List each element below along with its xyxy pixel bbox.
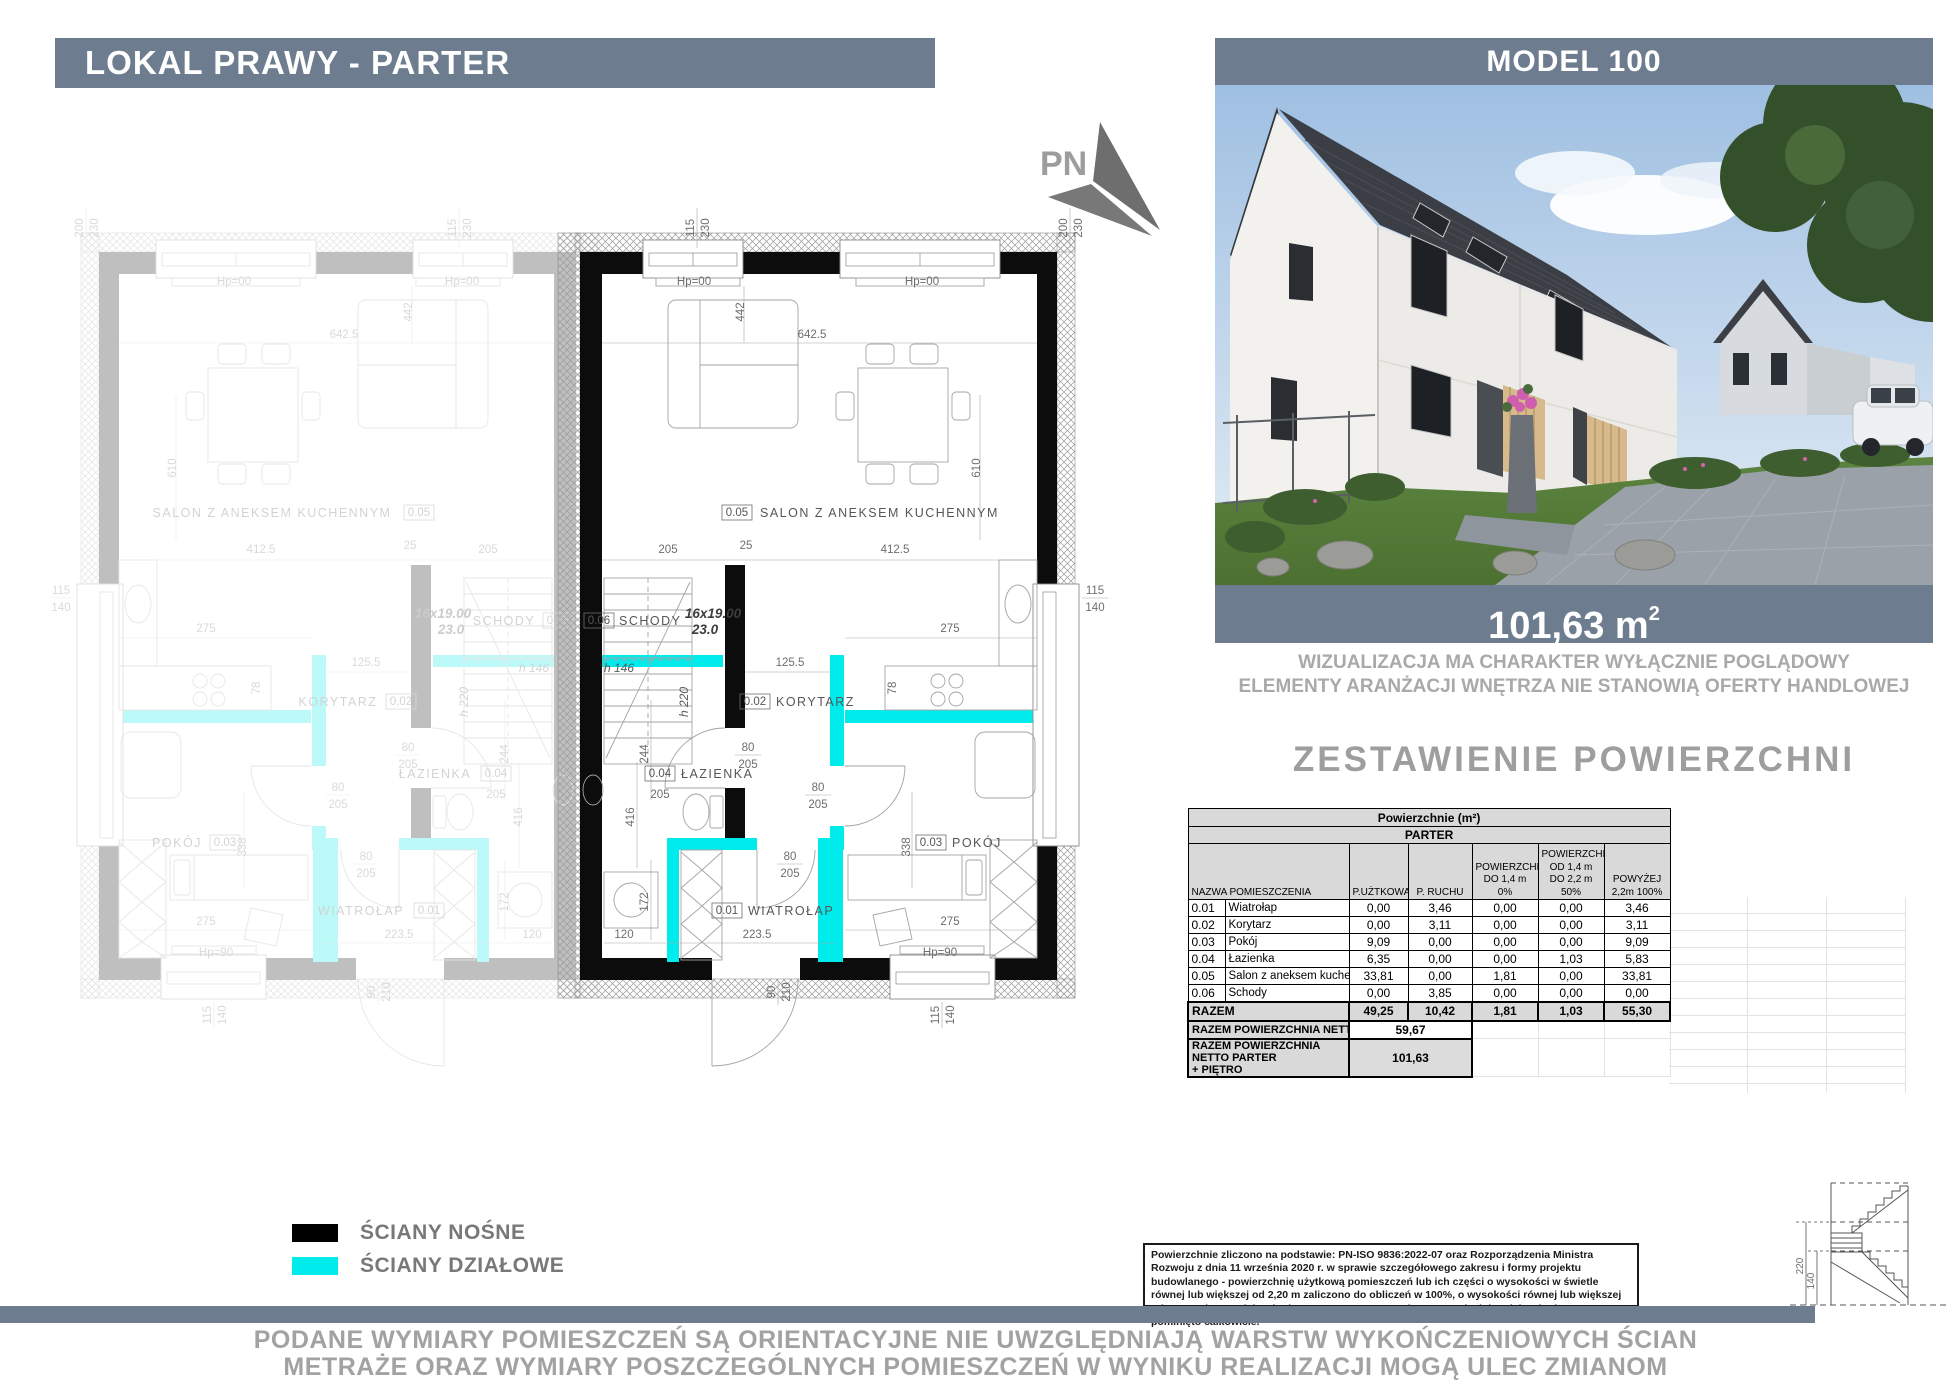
svg-text:125.5: 125.5 [776,657,805,669]
svg-text:205: 205 [486,789,505,801]
col-do14: POWIERZCHNIA DO 1,4 m 0% [1472,844,1538,900]
svg-text:115: 115 [930,1006,942,1024]
svg-text:KORYTARZ: KORYTARZ [776,695,855,709]
svg-text:210: 210 [381,982,393,1001]
col-od14do22: POWIERZCHNIA OD 1,4 m DO 2,2 m 50% [1538,844,1604,900]
svg-text:172: 172 [499,892,511,911]
svg-text:80: 80 [812,782,825,794]
svg-text:205: 205 [328,799,347,811]
svg-text:230: 230 [1073,218,1085,237]
svg-text:223.5: 223.5 [385,929,414,941]
svg-text:223.5: 223.5 [743,929,772,941]
footer-divider-bar [0,1306,1815,1323]
svg-text:90: 90 [766,986,778,999]
svg-text:SCHODY: SCHODY [619,614,681,628]
svg-text:642.5: 642.5 [798,329,827,341]
svg-text:205: 205 [398,759,417,771]
svg-text:275: 275 [940,623,959,635]
svg-text:POKÓJ: POKÓJ [152,835,202,850]
page-title: LOKAL PRAWY - PARTER [55,38,935,88]
svg-text:80: 80 [332,782,345,794]
svg-text:0.02: 0.02 [744,696,766,708]
svg-text:25: 25 [740,540,753,552]
legal-note: Powierzchnie zliczono na podstawie: PN-I… [1143,1243,1639,1307]
svg-text:205: 205 [478,544,497,556]
svg-text:23.0: 23.0 [437,622,465,637]
svg-text:80: 80 [402,742,415,754]
svg-text:Hp=90: Hp=90 [923,947,957,959]
svg-text:275: 275 [196,623,215,635]
svg-text:0.05: 0.05 [726,507,748,519]
visualization-image [1215,85,1933,585]
footer-line-2: METRAŻE ORAZ WYMIARY POSZCZEGÓLNYCH POMI… [0,1353,1951,1380]
svg-text:416: 416 [513,807,525,826]
svg-text:PN: PN [1040,145,1087,183]
svg-text:642.5: 642.5 [330,329,359,341]
legend-swatch-nosne [292,1224,338,1242]
svg-text:205: 205 [658,544,677,556]
svg-text:Hp=90: Hp=90 [199,947,233,959]
svg-text:275: 275 [940,916,959,928]
svg-text:80: 80 [742,742,755,754]
svg-text:0.05: 0.05 [408,507,430,519]
svg-text:0.01: 0.01 [418,905,440,917]
svg-text:80: 80 [360,851,373,863]
svg-text:0.03: 0.03 [214,837,236,849]
svg-text:610: 610 [167,458,179,477]
col-uzytkowa: P.UŻTKOWA [1349,844,1408,900]
svg-text:115: 115 [1086,585,1104,597]
svg-text:205: 205 [738,759,757,771]
svg-text:610: 610 [971,458,983,477]
area-badge: 101,63 m2 [1215,585,1933,643]
sheet: 0.05 SALON Z ANEKSEM KUCHENNYM 0.02 KORY… [0,0,1951,1380]
table-floor-header: PARTER [1188,827,1670,844]
svg-text:16x19.00: 16x19.00 [415,606,472,621]
svg-text:23.0: 23.0 [691,622,719,637]
table-title: ZESTAWIENIE POWIERZCHNI [1215,740,1933,780]
svg-text:h 146: h 146 [604,661,634,675]
svg-text:205: 205 [808,799,827,811]
svg-text:230: 230 [462,218,474,237]
svg-text:0.01: 0.01 [716,905,738,917]
model-title: MODEL 100 [1215,38,1933,85]
spreadsheet-grid [1669,897,1906,1093]
table-row-razem: RAZEM 49,2510,42 1,811,03 55,30 [1188,1002,1670,1021]
svg-text:220: 220 [1795,1257,1806,1274]
viz-disclaimer-1: WIZUALIZACJA MA CHARAKTER WYŁĄCZNIE POGL… [1215,652,1933,674]
table-row: 0.06Schody 0,003,85 0,000,00 0,00 [1188,985,1670,1002]
svg-text:244: 244 [639,744,651,764]
svg-text:125.5: 125.5 [352,657,381,669]
active-unit-labels: 0.05 SALON Z ANEKSEM KUCHENNYM 0.02 KORY… [584,208,1108,1028]
svg-text:230: 230 [700,218,712,237]
svg-text:442: 442 [403,302,415,321]
svg-text:WIATROŁAP: WIATROŁAP [748,904,834,918]
viz-disclaimer-2: ELEMENTY ARANŻACJI WNĘTRZA NIE STANOWIĄ … [1215,676,1933,698]
col-ruchu: P. RUCHU [1408,844,1472,900]
svg-text:140: 140 [217,1005,229,1024]
svg-text:POKÓJ: POKÓJ [952,835,1002,850]
stair-section-detail: 220 140 [1790,1183,1950,1305]
svg-text:90: 90 [366,986,378,999]
svg-text:140: 140 [1806,1272,1817,1289]
svg-text:205: 205 [356,868,375,880]
footer-line-1: PODANE WYMIARY POMIESZCZEŃ SĄ ORIENTACYJ… [0,1326,1951,1355]
svg-text:0.02: 0.02 [390,696,412,708]
svg-text:442: 442 [735,302,747,321]
svg-text:205: 205 [780,868,799,880]
svg-text:172: 172 [639,892,651,911]
svg-text:0.03: 0.03 [920,837,942,849]
svg-text:KORYTARZ: KORYTARZ [299,695,378,709]
svg-text:Hp=00: Hp=00 [677,276,711,288]
svg-text:200: 200 [74,218,86,237]
svg-text:78: 78 [887,682,899,695]
legend-label-nosne: ŚCIANY NOŚNE [360,1221,525,1245]
svg-text:WIATROŁAP: WIATROŁAP [318,904,404,918]
svg-text:SALON Z ANEKSEM KUCHENNYM: SALON Z ANEKSEM KUCHENNYM [760,506,999,520]
svg-text:140: 140 [1085,602,1104,614]
svg-text:0.06: 0.06 [588,615,610,627]
svg-text:140: 140 [945,1005,957,1024]
svg-text:115: 115 [202,1006,214,1024]
legend-swatch-dzialowe [292,1257,338,1275]
svg-text:25: 25 [404,540,417,552]
svg-text:h 220: h 220 [457,687,471,717]
svg-text:h 220: h 220 [677,687,691,717]
svg-text:Hp=00: Hp=00 [445,276,479,288]
table-row-netto-total: RAZEM POWIERZCHNIA NETTO PARTER + PIĘTRO… [1188,1039,1670,1077]
area-table: Powierzchnie (m²) PARTER NAZWA POMIESZCZ… [1187,808,1671,1078]
svg-text:h 146: h 146 [519,661,549,675]
svg-text:78: 78 [251,682,263,695]
svg-text:416: 416 [625,807,637,826]
svg-text:200: 200 [1058,218,1070,237]
svg-text:115: 115 [685,219,697,237]
svg-text:412.5: 412.5 [881,544,910,556]
table-row: 0.01Wiatrołap 0,003,46 0,000,00 3,46 [1188,900,1670,917]
table-row: 0.03Pokój 9,090,00 0,000,00 9,09 [1188,934,1670,951]
svg-text:Hp=00: Hp=00 [905,276,939,288]
svg-text:115: 115 [447,219,459,237]
svg-text:SCHODY: SCHODY [473,614,535,628]
table-row-netto-parter: RAZEM POWIERZCHNIA NETTO PARTER 59,67 [1188,1021,1670,1039]
svg-text:120: 120 [522,929,541,941]
col-name: NAZWA POMIESZCZENIA [1188,844,1349,900]
svg-text:120: 120 [614,929,633,941]
svg-text:412.5: 412.5 [247,544,276,556]
col-powyzej22: POWYŻEJ 2,2m 100% [1604,844,1670,900]
svg-text:205: 205 [650,789,669,801]
table-surface-header: Powierzchnie (m²) [1188,809,1670,827]
svg-text:210: 210 [781,982,793,1001]
svg-text:0.04: 0.04 [485,768,508,780]
svg-text:275: 275 [196,916,215,928]
svg-text:244: 244 [499,744,511,764]
svg-text:16x19.00: 16x19.00 [685,606,742,621]
table-row: 0.02Korytarz 0,003,11 0,000,00 3,11 [1188,917,1670,934]
legend-label-dzialowe: ŚCIANY DZIAŁOWE [360,1254,564,1278]
table-row: 0.04Łazienka 6,350,00 0,001,03 5,83 [1188,951,1670,968]
ghost-unit: 0.05 SALON Z ANEKSEM KUCHENNYM 0.02 KORY… [48,208,598,1066]
svg-text:115: 115 [52,585,70,597]
svg-text:230: 230 [89,218,101,237]
svg-text:SALON Z ANEKSEM KUCHENNYM: SALON Z ANEKSEM KUCHENNYM [153,506,392,520]
svg-text:80: 80 [784,851,797,863]
svg-text:Hp=00: Hp=00 [217,276,251,288]
svg-text:338: 338 [901,837,913,856]
svg-text:140: 140 [51,602,70,614]
active-unit [558,233,1079,1066]
svg-text:338: 338 [237,837,249,856]
svg-text:0.04: 0.04 [649,768,672,780]
table-row: 0.05Salon z aneksem kuchennym 33,810,00 … [1188,968,1670,985]
